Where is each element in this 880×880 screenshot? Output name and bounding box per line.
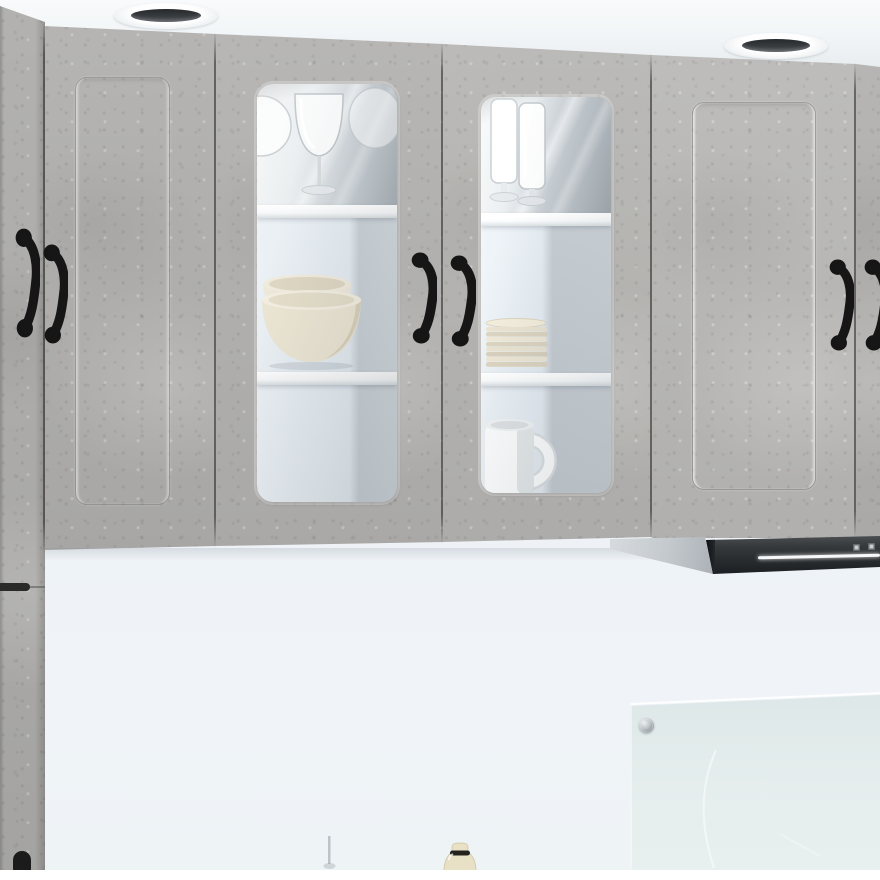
bottle	[436, 838, 484, 872]
recessed-spotlight	[724, 33, 828, 59]
cabinet-seam	[650, 53, 652, 540]
cabinet-wall-shadow	[44, 548, 650, 561]
door-2-bottom-section	[257, 372, 397, 502]
spotlight-lamp	[131, 9, 201, 22]
cabinet-seam	[441, 42, 443, 544]
tall-cabinet-seam-shadow	[0, 583, 30, 591]
wine-glasses	[257, 84, 397, 205]
plate-stack	[483, 315, 553, 371]
door-3-glass-window	[481, 97, 611, 493]
door-3-shelf-upper	[481, 213, 611, 226]
recessed-spotlight	[114, 3, 218, 29]
door-2-glass-window	[257, 84, 397, 502]
cabinet-handle	[14, 228, 40, 338]
kitchen-photo	[0, 0, 880, 880]
door-4-raised-panel	[692, 102, 816, 490]
splashback-reflections	[630, 694, 880, 870]
door-3-shelf-lower	[481, 373, 611, 386]
door-2-shelf-upper	[257, 205, 397, 218]
tall-cabinet-side-edge	[0, 0, 4, 872]
cabinet-handle	[449, 255, 476, 347]
cabinet-door-1	[44, 24, 216, 552]
faint-glass	[322, 836, 338, 872]
hood-control-button	[853, 544, 860, 551]
cabinet-door-2	[216, 24, 443, 552]
cabinet-seam	[214, 32, 216, 548]
door-1-raised-panel	[75, 77, 170, 505]
bowl-stack	[257, 272, 397, 372]
cabinet-handle	[828, 259, 854, 351]
cabinet-door-4	[652, 24, 856, 552]
mug	[481, 413, 611, 493]
cabinet-handle	[410, 252, 437, 344]
tall-cabinet	[0, 0, 45, 872]
cabinet-seam	[854, 62, 856, 539]
tall-cabinet-lower-handle	[13, 851, 31, 872]
cabinet-handle	[42, 244, 68, 344]
spotlight-lamp	[742, 39, 810, 52]
tall-glasses	[481, 97, 611, 213]
hood-led-strip	[758, 554, 880, 560]
hood-control-button	[868, 543, 875, 550]
foreground-white-band	[0, 870, 880, 880]
cabinet-handle	[863, 259, 880, 351]
door-2-shelf-lower	[257, 372, 397, 385]
